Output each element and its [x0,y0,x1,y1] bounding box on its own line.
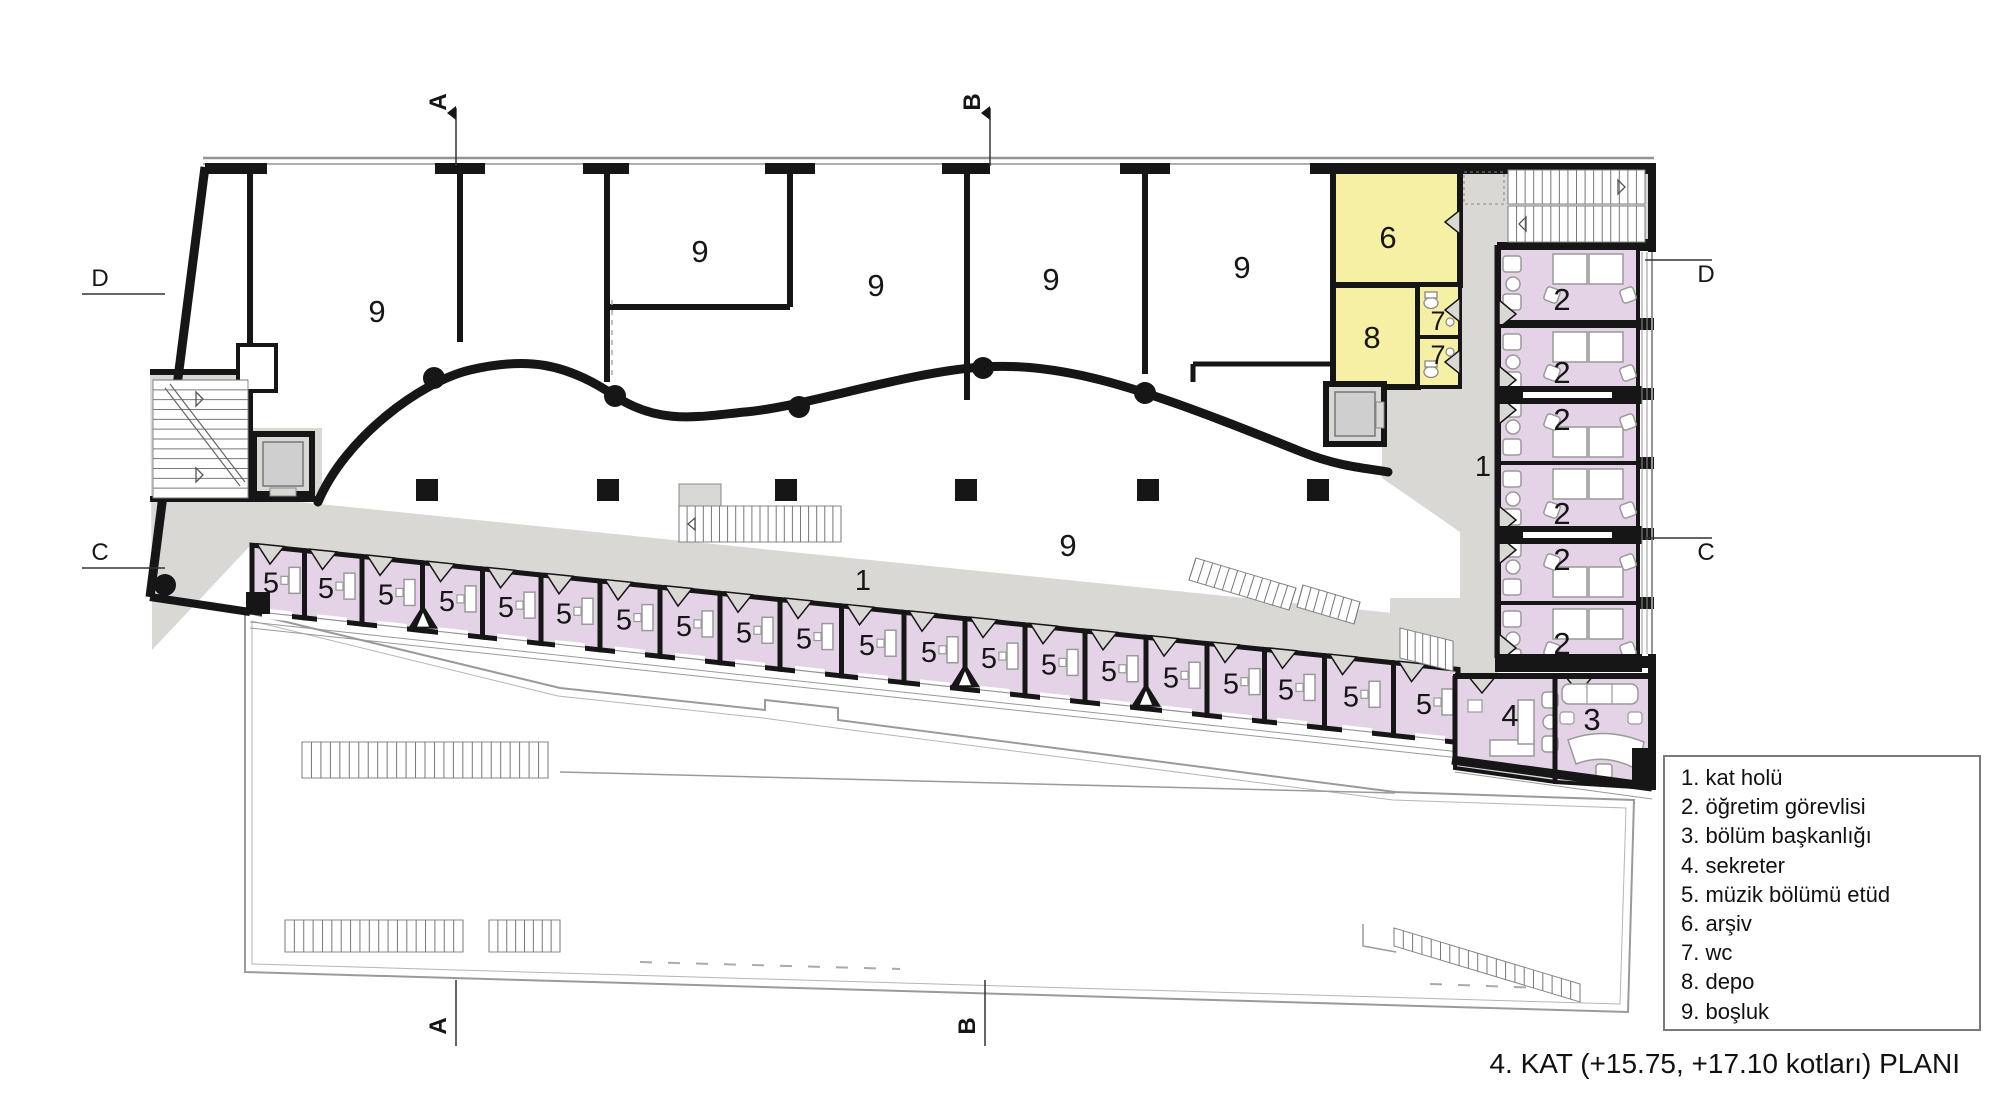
legend-item: 8. depo [1681,967,1979,996]
chair [1059,658,1066,666]
room-label-void: 9 [368,294,385,329]
desk [1589,609,1623,639]
room-label-etud: 5 [921,637,937,669]
side-table [1628,712,1642,724]
chair [574,607,581,615]
legend-box: 1. kat holü2. öğretim görevlisi3. bölüm … [1663,755,1981,1031]
chair [939,646,946,654]
room-label-wc: 7 [1430,340,1445,370]
side-table [1503,439,1521,455]
desk [344,573,355,599]
desk [1589,254,1623,284]
stool [1506,355,1520,369]
column-round [1134,382,1156,404]
legend-item: 6. arşiv [1681,909,1979,938]
room-label-etud: 5 [378,579,394,611]
room-label-etud: 5 [981,643,997,675]
desk [404,579,415,605]
chair [1361,690,1368,698]
room-label-etud: 5 [1343,681,1359,713]
room-label-hall: 1 [1475,451,1491,483]
legend-item: 9. boşluk [1681,997,1979,1026]
double-wall-gap [1523,392,1612,398]
desk [1553,254,1587,284]
side-table [1468,700,1482,712]
room-label-void: 9 [1059,528,1076,563]
room-label-etud: 5 [439,586,455,618]
desk [762,617,773,643]
section-letter-right: C [1697,539,1714,566]
desk [1127,656,1138,682]
toilet-tank-icon [1425,292,1437,298]
side-table [1503,579,1521,595]
chair [877,639,884,647]
desk [524,592,535,618]
chair [1241,678,1248,686]
right-corridor-strip [1460,167,1498,730]
column-square [1137,479,1159,501]
lower-stair-bottom-a [285,920,463,952]
legend-item: 3. bölüm başkanlığı [1681,821,1979,850]
room-label-etud: 5 [616,605,632,637]
column-round [154,574,176,596]
room-label-etud: 5 [318,573,334,605]
floor-plan-sheet: ABABDCDC 9999991155555555555555555555222… [0,0,2000,1101]
column-square [416,479,438,501]
column-square [955,479,977,501]
side-table [1503,334,1521,350]
room-label-etud: 5 [1101,656,1117,688]
section-letter-left: C [91,539,108,566]
lower-window-ticks [640,962,900,969]
column-round [423,367,445,389]
desk [1304,674,1315,700]
desk [1067,649,1078,675]
legend-item: 2. öğretim görevlisi [1681,792,1979,821]
elevator-door [270,488,296,496]
room-label-depot: 8 [1363,320,1380,355]
curved-hall-wall [318,363,1388,502]
room-label-etud: 5 [263,567,279,599]
side-table [1560,712,1574,724]
side-table [1503,256,1521,272]
room-label-etud: 5 [1223,669,1239,701]
desk [582,598,593,624]
chair [336,582,343,590]
desk [1589,469,1623,499]
room-label-etud: 5 [859,630,875,662]
sink-icon [1446,318,1454,326]
column-square [1307,479,1329,501]
legend-item: 1. kat holü [1681,763,1979,792]
desk [822,624,833,650]
lower-step [1363,924,1396,952]
chair [281,576,288,584]
chair [396,588,403,596]
column-round [604,385,626,407]
room-label-etud: 5 [556,598,572,630]
desk [1589,332,1623,362]
room-label-etud: 5 [736,617,752,649]
sink-icon [1446,348,1454,356]
elevator-car [1335,392,1375,436]
column-square [597,479,619,501]
room-label-etud: 5 [1163,662,1179,694]
room-label-etud: 5 [1278,674,1294,706]
section-letter-top: A [425,93,452,110]
desk [465,586,476,612]
legend-list: 1. kat holü2. öğretim görevlisi3. bölüm … [1681,763,1979,1026]
desk [702,611,713,637]
room-label-archive: 6 [1379,220,1396,255]
room-label-wc: 7 [1430,306,1445,336]
room-label-etud: 5 [1416,689,1432,721]
room-label-etud: 5 [498,592,514,624]
room-label-etud: 5 [676,611,692,643]
stair-landing [679,484,721,506]
stool [1506,277,1520,291]
room-label-head: 3 [1583,702,1600,737]
section-letter-bottom: B [954,1017,981,1034]
legend-item: 7. wc [1681,938,1979,967]
room-label-office: 2 [1553,355,1570,390]
room-label-office: 2 [1553,626,1570,661]
desk [947,637,958,663]
section-letter-right: D [1697,261,1714,288]
room-label-void: 9 [1042,262,1059,297]
column-square [775,479,797,501]
chair [694,620,701,628]
desk [1518,700,1534,744]
chair [814,633,821,641]
column-round [972,357,994,379]
stool [1506,420,1520,434]
desk [1007,643,1018,669]
room-label-secretary: 4 [1501,698,1518,733]
legend-item: 5. müzik bölümü etüd [1681,880,1979,909]
desk [1553,469,1587,499]
chair [1434,698,1441,706]
side-table [1503,611,1521,627]
room-label-etud: 5 [1041,649,1057,681]
chair [999,652,1006,660]
room-label-office: 2 [1553,282,1570,317]
chair [1119,665,1126,673]
section-letter-top: B [959,93,986,110]
room-label-void: 9 [1233,250,1250,285]
room-label-office: 2 [1553,496,1570,531]
elevator-car [263,442,303,486]
elevator-door [1376,402,1384,428]
desk [1442,689,1453,715]
desk [1249,669,1260,695]
desk [1369,681,1380,707]
room-label-etud: 5 [796,624,812,656]
chair [634,614,641,622]
room-label-hall: 1 [855,565,871,597]
desk [642,605,653,631]
desk [1589,427,1623,457]
desk [1189,662,1200,688]
plan-title: 4. KAT (+15.75, +17.10 kotları) PLANI [1360,1048,1960,1080]
section-letter-bottom: A [425,1017,452,1034]
room-label-office: 2 [1553,402,1570,437]
stool [1506,560,1520,574]
chair [1296,683,1303,691]
section-letter-left: D [91,265,108,292]
room-label-void: 9 [867,268,884,303]
stool [1506,492,1520,506]
room-label-void: 9 [691,234,708,269]
desk [289,567,300,593]
room-label-office: 2 [1553,542,1570,577]
desk [1589,567,1623,597]
sofa [1562,684,1638,704]
chair [1181,671,1188,679]
desk [885,630,896,656]
legend-item: 4. sekreter [1681,851,1979,880]
side-table [1503,471,1521,487]
chair [516,601,523,609]
double-wall-gap [1523,532,1612,538]
chair [457,595,464,603]
column-round [788,396,810,418]
chair [754,626,761,634]
